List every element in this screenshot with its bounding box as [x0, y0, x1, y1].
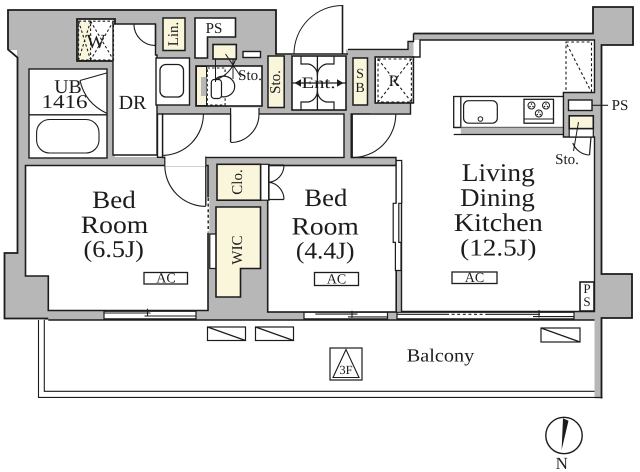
- svg-text:S: S: [356, 67, 364, 82]
- svg-text:Kitchen: Kitchen: [454, 208, 543, 237]
- svg-text:AC: AC: [465, 271, 484, 286]
- svg-text:W: W: [87, 31, 106, 53]
- svg-text:Ent.: Ent.: [302, 75, 336, 92]
- svg-text:AC: AC: [156, 272, 175, 287]
- svg-text:PS: PS: [612, 98, 629, 114]
- svg-text:Lin.: Lin.: [166, 22, 182, 47]
- svg-text:PS: PS: [206, 21, 223, 37]
- svg-text:Sto.: Sto.: [268, 70, 284, 94]
- svg-text:(4.4J): (4.4J): [296, 239, 355, 265]
- svg-text:DR: DR: [119, 92, 147, 114]
- svg-text:Clo.: Clo.: [230, 169, 246, 194]
- svg-text:Bed: Bed: [92, 187, 136, 214]
- svg-text:S: S: [583, 294, 590, 309]
- svg-text:(12.5J): (12.5J): [460, 236, 536, 262]
- svg-text:1416: 1416: [42, 92, 88, 113]
- svg-text:Balcony: Balcony: [407, 347, 475, 367]
- svg-text:Room: Room: [292, 214, 360, 241]
- svg-text:3F: 3F: [339, 363, 352, 377]
- svg-text:Bed: Bed: [304, 185, 348, 212]
- svg-text:Sto.: Sto.: [238, 68, 262, 84]
- svg-text:Room: Room: [81, 212, 149, 239]
- svg-text:B: B: [355, 81, 364, 96]
- svg-text:R: R: [389, 73, 400, 90]
- svg-text:(6.5J): (6.5J): [84, 237, 144, 263]
- svg-text:Sto.: Sto.: [555, 152, 579, 168]
- svg-text:WIC: WIC: [230, 235, 246, 264]
- svg-text:N: N: [556, 454, 568, 472]
- svg-text:AC: AC: [327, 273, 346, 288]
